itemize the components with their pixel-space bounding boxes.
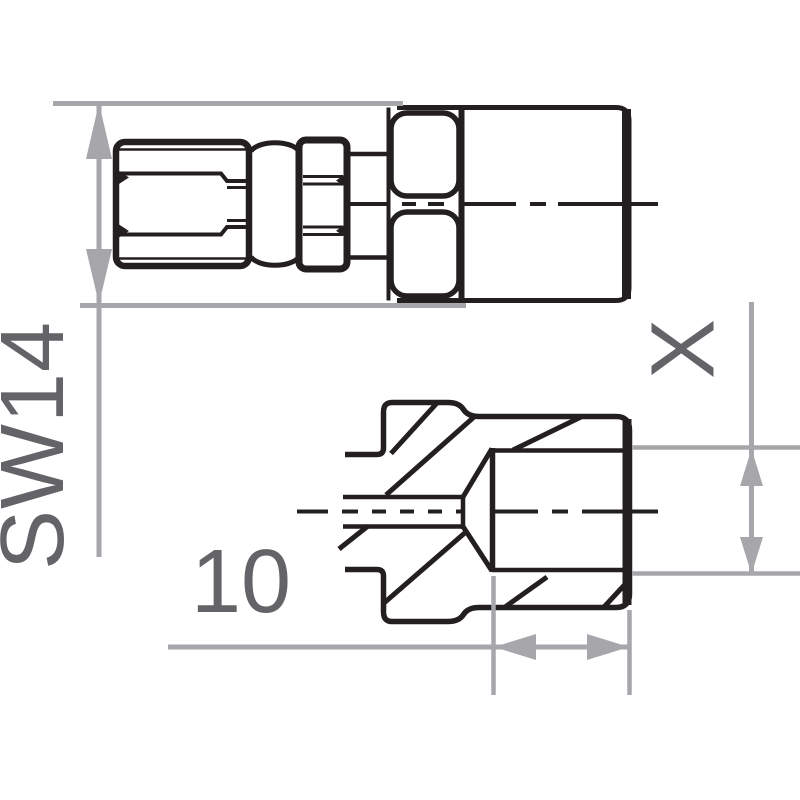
technical-drawing-page: SW14 10 X [0,0,800,800]
length-10-arrow-left [494,634,536,660]
length-10-label: 10 [191,532,291,632]
top-view-side-elevation [116,108,658,301]
x-arrow-up [740,449,763,486]
sw14-label: SW14 [0,321,83,570]
x-arrow-down [740,537,763,574]
x-label: X [634,319,734,379]
sleeve-bulge-bottom [251,257,299,265]
hex-flat-upper [391,113,459,196]
sw14-arrow-down [86,249,112,304]
hex-flat-lower [391,212,459,296]
bottom-view-section [297,403,658,622]
flare-cone-upper [463,449,492,498]
sw14-arrow-up [86,103,112,159]
sleeve-bulge-top [251,143,299,151]
fitting-technical-drawing: SW14 10 X [0,0,800,800]
collar-outline [299,140,347,269]
socket-outline [116,142,249,266]
length-10-arrow-right [587,634,629,660]
